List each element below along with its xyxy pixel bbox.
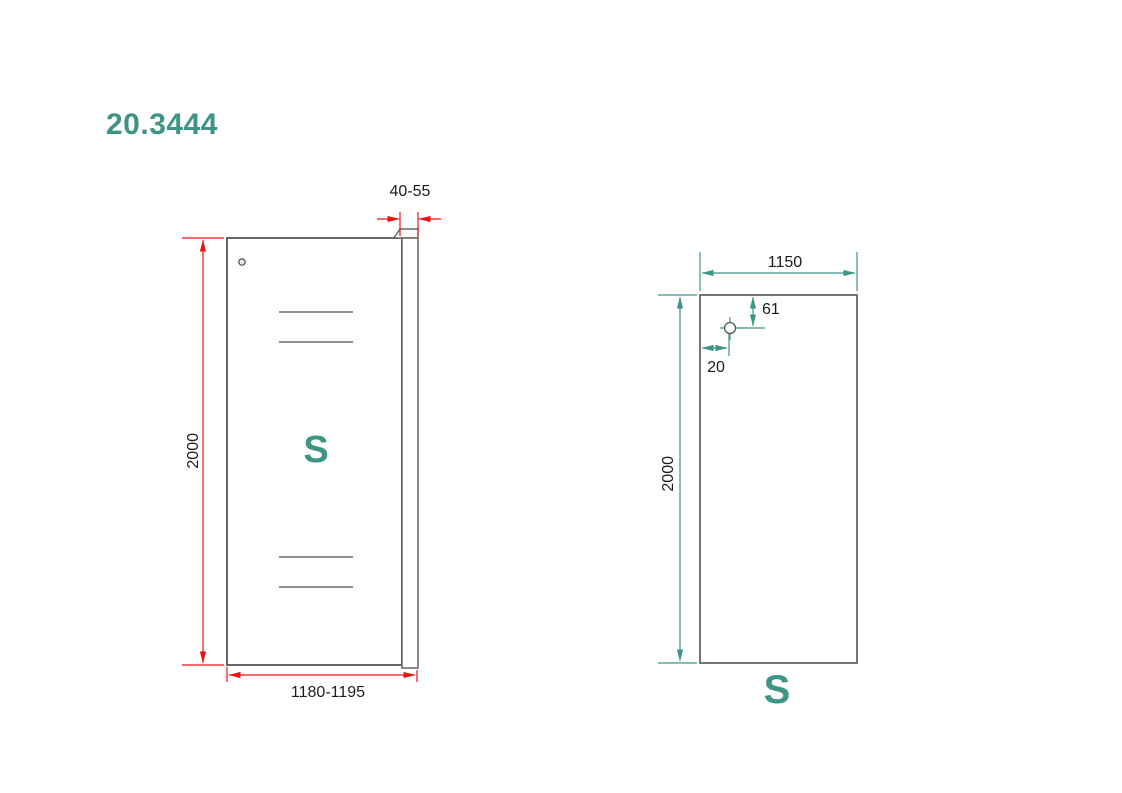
side-glass-panel <box>700 295 857 663</box>
dim-label-front-height: 2000 <box>185 421 203 481</box>
technical-drawing-page: 20.3444 40-55 2000 1180-1195 S 1150 2000… <box>0 0 1122 793</box>
drawing-number-title: 20.3444 <box>106 108 218 141</box>
wall-profile-bar <box>402 238 418 668</box>
wall-profile-cap <box>394 229 418 238</box>
dim-label-profile-depth: 40-55 <box>370 183 450 201</box>
dim-label-hole-from-edge: 20 <box>696 359 736 377</box>
side-view <box>700 295 857 663</box>
dim-label-front-width: 1180-1195 <box>272 684 384 702</box>
front-view-series-letter: S <box>286 430 346 472</box>
dim-front-width <box>227 667 417 682</box>
dim-label-hole-from-top: 61 <box>762 301 780 319</box>
dim-label-side-height: 2000 <box>660 444 678 504</box>
side-hole <box>725 323 736 334</box>
dim-label-side-width: 1150 <box>745 254 825 272</box>
side-view-series-letter: S <box>747 668 807 712</box>
front-fixing-hole <box>239 259 245 265</box>
